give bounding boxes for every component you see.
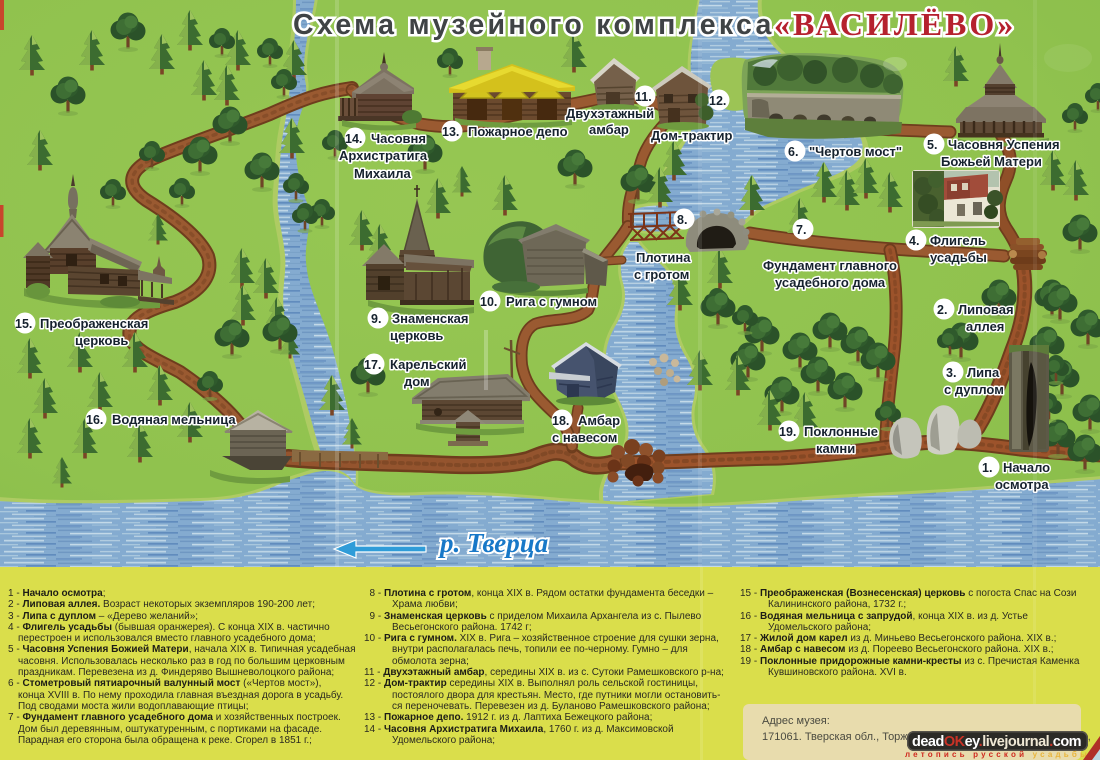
svg-text:Архистратига: Архистратига — [339, 148, 428, 163]
svg-text:Пожарное депо: Пожарное депо — [468, 124, 568, 139]
svg-text:Божьей Матери: Божьей Матери — [941, 154, 1042, 169]
svg-text:15.: 15. — [15, 317, 32, 331]
svg-text:13.: 13. — [442, 125, 459, 139]
svg-text:р. Тверца: р. Тверца — [438, 528, 548, 558]
svg-text:с навесом: с навесом — [552, 430, 617, 445]
svg-text:Плотина: Плотина — [636, 250, 691, 265]
svg-text:усадебного дома: усадебного дома — [775, 275, 886, 290]
svg-text:камни: камни — [816, 441, 855, 456]
svg-text:Начало: Начало — [1003, 460, 1050, 475]
svg-text:3.: 3. — [946, 366, 956, 380]
svg-text:Поклонные: Поклонные — [804, 424, 878, 439]
svg-text:16.: 16. — [86, 413, 103, 427]
svg-text:Карельский: Карельский — [390, 357, 466, 372]
svg-text:17.: 17. — [364, 358, 381, 372]
svg-text:осмотра: осмотра — [995, 477, 1049, 492]
svg-text:церковь: церковь — [390, 328, 443, 343]
svg-text:7.: 7. — [796, 223, 806, 237]
svg-text:1.: 1. — [982, 461, 992, 475]
svg-text:11.: 11. — [635, 90, 652, 104]
svg-text:Михаила: Михаила — [354, 166, 412, 181]
svg-text:с дуплом: с дуплом — [944, 382, 1004, 397]
svg-text:дом: дом — [404, 374, 430, 389]
svg-text:Часовня Успения: Часовня Успения — [948, 137, 1060, 152]
svg-text:18.: 18. — [552, 414, 569, 428]
svg-text:4.: 4. — [909, 234, 919, 248]
svg-text:амбар: амбар — [589, 122, 629, 137]
svg-text:12.: 12. — [709, 94, 726, 108]
svg-text:с гротом: с гротом — [634, 267, 689, 282]
svg-text:Схема музейного комплекса: Схема музейного комплекса — [293, 9, 775, 41]
svg-text:Двухэтажный: Двухэтажный — [566, 106, 654, 121]
svg-text:8.: 8. — [677, 213, 687, 227]
svg-text:10.: 10. — [480, 295, 497, 309]
svg-text:усадьбы: усадьбы — [930, 250, 987, 265]
svg-text:Знаменская: Знаменская — [392, 311, 468, 326]
svg-text:Амбар: Амбар — [578, 413, 620, 428]
svg-text:Липовая: Липовая — [958, 302, 1014, 317]
svg-text:церковь: церковь — [75, 333, 128, 348]
svg-text:Преображенская: Преображенская — [40, 316, 148, 331]
svg-text:Часовня: Часовня — [371, 131, 426, 146]
svg-text:9.: 9. — [371, 312, 381, 326]
svg-text:14.: 14. — [345, 132, 362, 146]
svg-text:2.: 2. — [937, 303, 947, 317]
svg-text:Флигель: Флигель — [930, 233, 986, 248]
svg-text:6.: 6. — [788, 145, 798, 159]
svg-text:Рига с гумном: Рига с гумном — [506, 294, 597, 309]
svg-text:Липа: Липа — [967, 365, 1000, 380]
svg-text:19.: 19. — [779, 425, 796, 439]
svg-text:«ВАСИЛЁВО»: «ВАСИЛЁВО» — [774, 6, 1016, 42]
svg-text:Водяная мельница: Водяная мельница — [112, 412, 236, 427]
svg-text:"Чертов мост": "Чертов мост" — [809, 144, 902, 159]
svg-text:аллея: аллея — [966, 319, 1004, 334]
svg-text:5.: 5. — [927, 138, 937, 152]
svg-text:Фундамент главного: Фундамент главного — [763, 258, 897, 273]
svg-text:Дом-трактир: Дом-трактир — [651, 128, 733, 143]
